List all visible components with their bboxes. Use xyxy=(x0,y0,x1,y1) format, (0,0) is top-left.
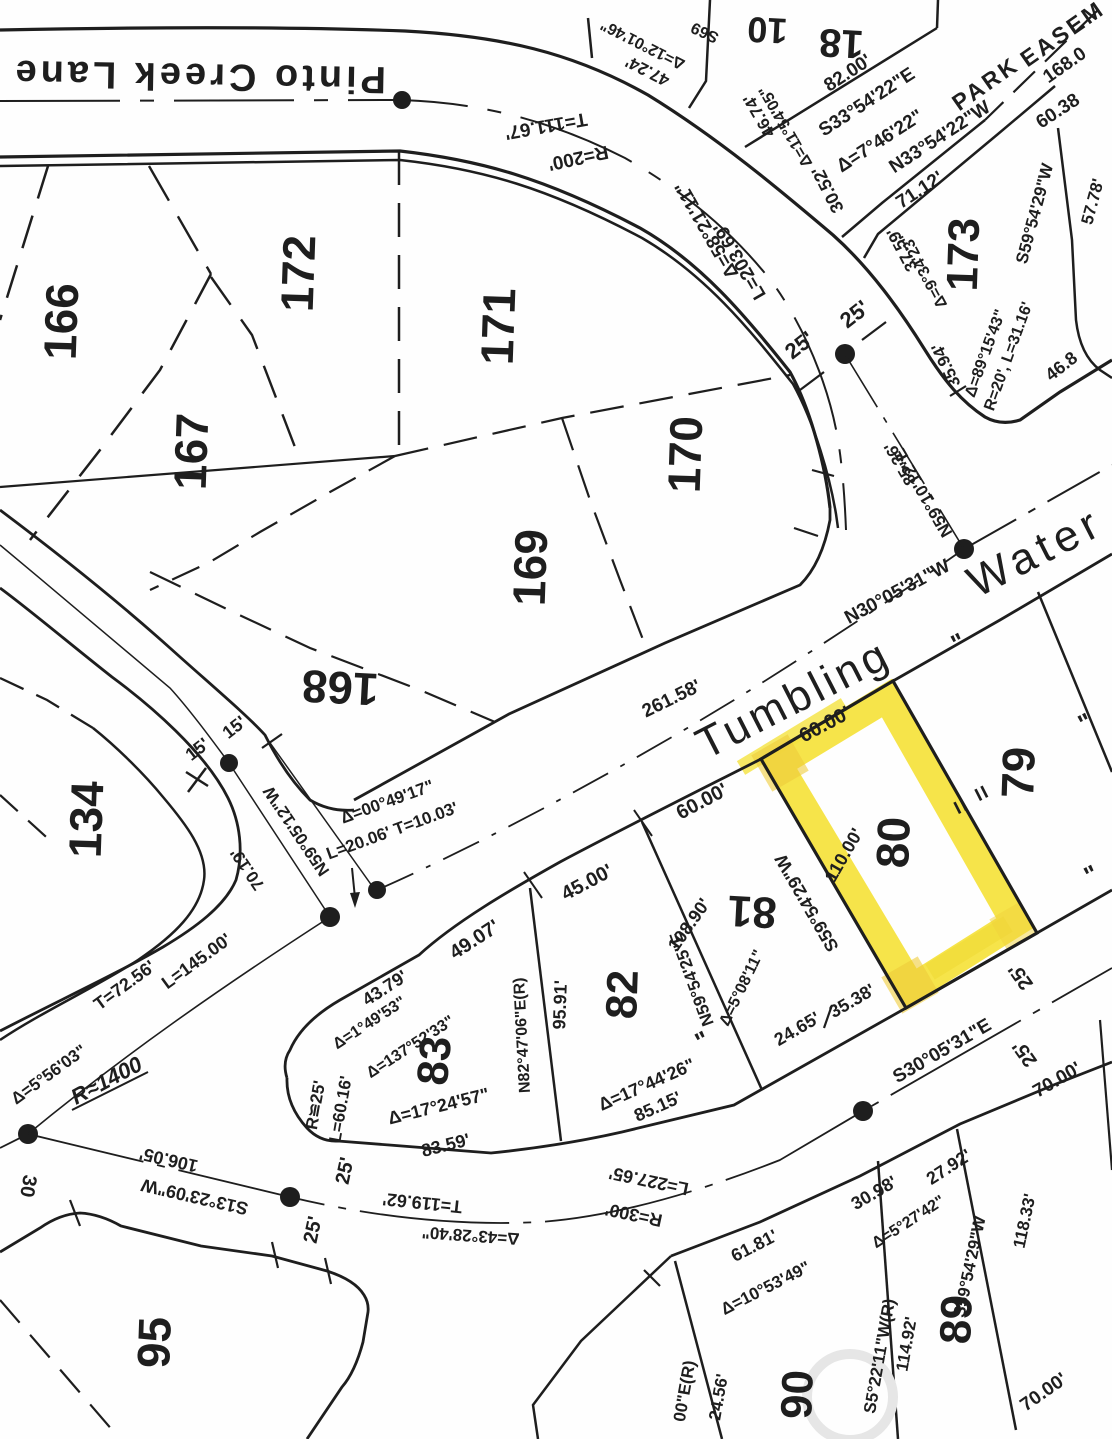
svg-text:81: 81 xyxy=(727,886,778,937)
svg-text:171: 171 xyxy=(471,287,526,366)
svg-text:166: 166 xyxy=(34,282,89,361)
svg-text:170: 170 xyxy=(658,415,713,494)
svg-text:Pinto Creek Lane: Pinto Creek Lane xyxy=(11,52,386,101)
svg-text:169: 169 xyxy=(503,528,558,607)
svg-text:79: 79 xyxy=(991,746,1045,799)
svg-text:80: 80 xyxy=(866,816,920,869)
svg-text:168: 168 xyxy=(300,660,379,716)
svg-text:173: 173 xyxy=(938,217,990,292)
svg-text:172: 172 xyxy=(271,234,326,313)
svg-text:90: 90 xyxy=(772,1369,823,1420)
svg-text:95: 95 xyxy=(127,1316,181,1369)
svg-text:82: 82 xyxy=(597,969,648,1020)
svg-text:10: 10 xyxy=(746,9,788,52)
svg-text:30: 30 xyxy=(15,1173,41,1199)
svg-text:167: 167 xyxy=(164,412,219,491)
svg-text:95.91': 95.91' xyxy=(549,980,571,1030)
svg-text:134: 134 xyxy=(59,780,114,859)
